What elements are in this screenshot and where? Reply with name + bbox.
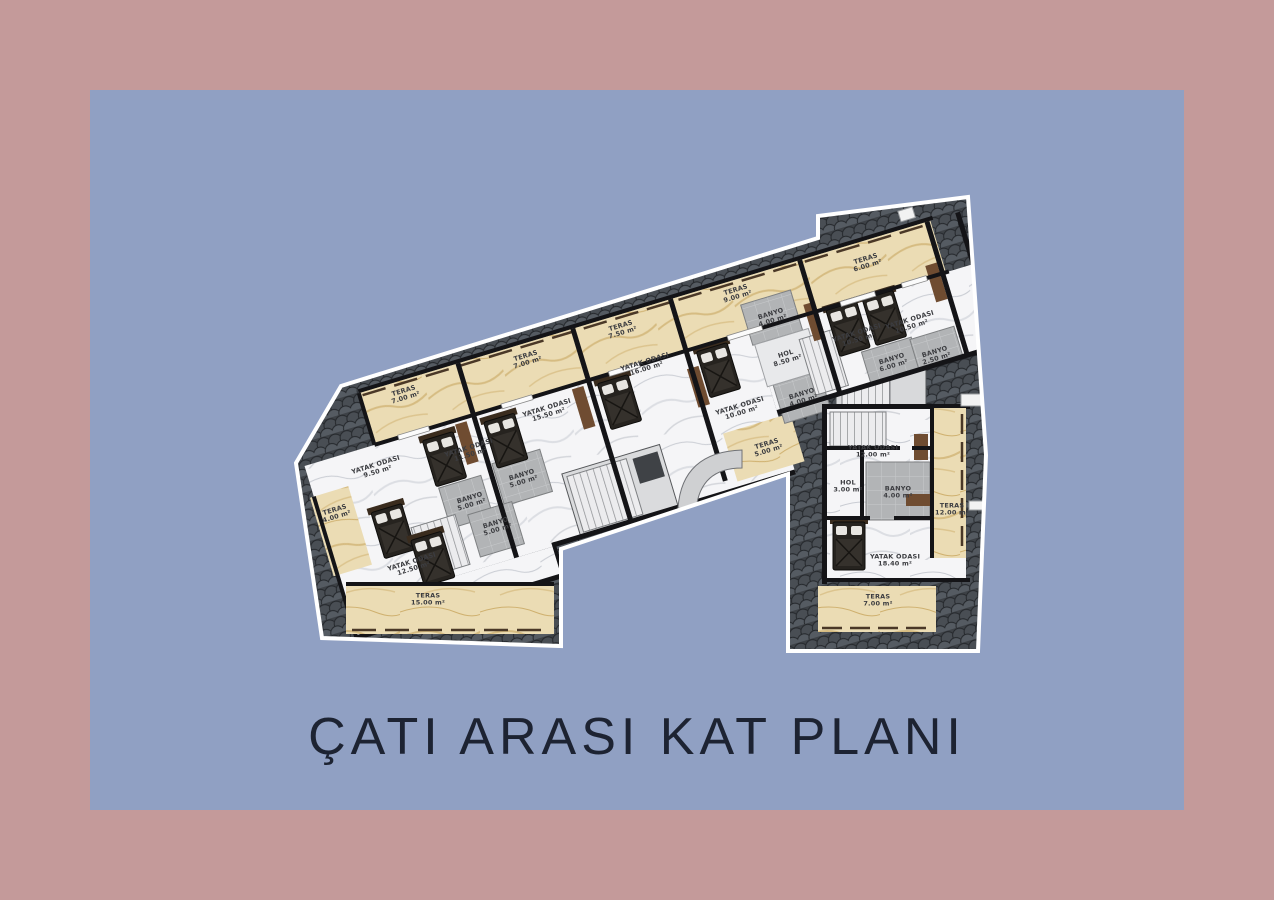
- room-label-bedroom-10: YATAK ODASI18.40 m²: [870, 554, 920, 569]
- page-title: ÇATI ARASI KAT PLANI: [308, 707, 966, 767]
- room-label-teras-7: TERAS15.00 m²: [411, 593, 445, 608]
- room-label-bedroom-9: YATAK ODASI12.00 m²: [848, 445, 898, 460]
- floor-plan-stage: TERAS7.00 m² TERAS7.00 m² TERAS7.50 m² T…: [0, 0, 1274, 900]
- room-label-teras-10: TERAS7.00 m²: [863, 594, 892, 609]
- terrace-southwest: [346, 582, 554, 634]
- attic-floor-plan-page: { "title": "ÇATI ARASI KAT PLANI", "colo…: [0, 0, 1274, 900]
- room-label-teras-9: TERAS12.00 m²: [935, 503, 969, 518]
- room-label-banyo-8: BANYO4.00 m²: [883, 486, 912, 501]
- room-label-hol-2: HOL3.00 m²: [833, 480, 862, 495]
